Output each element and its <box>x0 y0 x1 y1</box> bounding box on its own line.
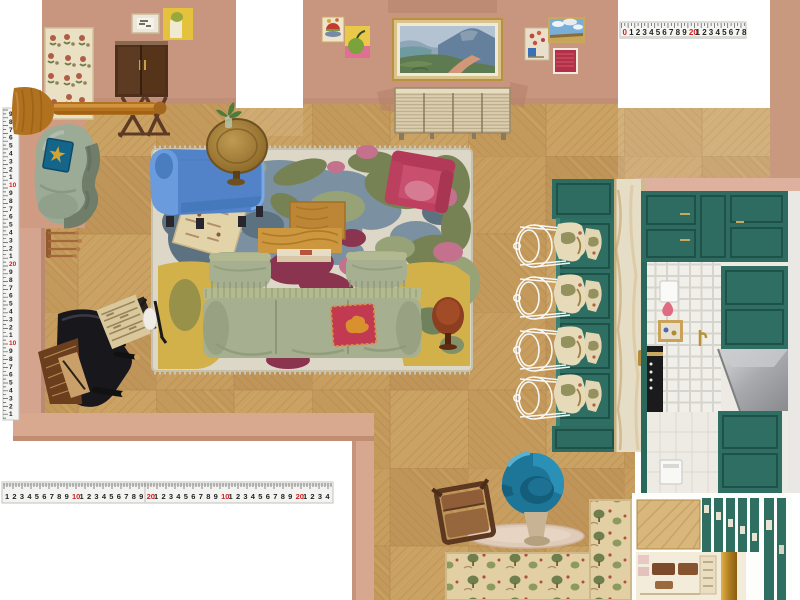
svg-text:6: 6 <box>9 135 13 142</box>
svg-text:3: 3 <box>709 28 714 37</box>
svg-text:3: 3 <box>318 492 322 501</box>
svg-text:1: 1 <box>154 492 158 501</box>
svg-text:7: 7 <box>669 28 674 37</box>
svg-text:3: 3 <box>94 492 98 501</box>
svg-text:10: 10 <box>9 182 17 189</box>
svg-text:1: 1 <box>9 332 13 339</box>
svg-text:3: 3 <box>9 158 13 165</box>
svg-text:2: 2 <box>9 403 13 410</box>
svg-text:3: 3 <box>20 492 24 501</box>
svg-text:5: 5 <box>184 492 188 501</box>
svg-text:1: 1 <box>9 253 13 260</box>
svg-text:6: 6 <box>266 492 270 501</box>
svg-text:5: 5 <box>258 492 262 501</box>
svg-text:2: 2 <box>236 492 240 501</box>
svg-text:9: 9 <box>9 348 13 355</box>
svg-text:1: 1 <box>9 411 13 418</box>
svg-text:5: 5 <box>109 492 113 501</box>
svg-text:6: 6 <box>117 492 121 501</box>
svg-text:4: 4 <box>9 151 13 158</box>
svg-text:7: 7 <box>124 492 128 501</box>
svg-text:9: 9 <box>288 492 292 501</box>
svg-text:2: 2 <box>87 492 91 501</box>
svg-text:1: 1 <box>5 492 9 501</box>
svg-text:2: 2 <box>702 28 707 37</box>
svg-text:4: 4 <box>9 230 13 237</box>
svg-text:3: 3 <box>642 28 647 37</box>
svg-text:7: 7 <box>199 492 203 501</box>
svg-text:20: 20 <box>9 261 17 268</box>
svg-text:4: 4 <box>649 28 654 37</box>
svg-text:3: 3 <box>9 316 13 323</box>
svg-text:5: 5 <box>722 28 727 37</box>
svg-text:3: 3 <box>169 492 173 501</box>
svg-text:7: 7 <box>9 206 13 213</box>
svg-text:7: 7 <box>273 492 277 501</box>
svg-text:2: 2 <box>9 166 13 173</box>
svg-text:3: 3 <box>243 492 247 501</box>
svg-text:9: 9 <box>682 28 687 37</box>
svg-text:5: 5 <box>9 301 13 308</box>
svg-text:9: 9 <box>9 269 13 276</box>
svg-text:3: 3 <box>9 395 13 402</box>
svg-text:9: 9 <box>214 492 218 501</box>
svg-text:1: 1 <box>696 28 701 37</box>
svg-text:2: 2 <box>9 245 13 252</box>
svg-text:10: 10 <box>9 340 17 347</box>
svg-text:6: 6 <box>662 28 667 37</box>
svg-text:2: 2 <box>310 492 314 501</box>
svg-text:8: 8 <box>206 492 210 501</box>
svg-text:7: 7 <box>50 492 54 501</box>
svg-text:8: 8 <box>9 356 13 363</box>
svg-text:6: 6 <box>191 492 195 501</box>
svg-text:7: 7 <box>9 127 13 134</box>
svg-text:6: 6 <box>9 214 13 221</box>
svg-text:9: 9 <box>65 492 69 501</box>
svg-text:9: 9 <box>139 492 143 501</box>
svg-text:2: 2 <box>9 324 13 331</box>
svg-text:8: 8 <box>281 492 285 501</box>
svg-text:0: 0 <box>623 28 628 37</box>
svg-text:6: 6 <box>729 28 734 37</box>
svg-text:8: 8 <box>742 28 747 37</box>
svg-text:6: 6 <box>42 492 46 501</box>
svg-text:1: 1 <box>303 492 307 501</box>
svg-text:3: 3 <box>9 237 13 244</box>
svg-text:5: 5 <box>9 222 13 229</box>
svg-text:1: 1 <box>629 28 634 37</box>
svg-text:7: 7 <box>9 285 13 292</box>
svg-text:7: 7 <box>9 364 13 371</box>
svg-text:6: 6 <box>9 293 13 300</box>
svg-text:1: 1 <box>9 174 13 181</box>
svg-text:8: 8 <box>132 492 136 501</box>
svg-text:5: 5 <box>35 492 39 501</box>
svg-text:8: 8 <box>9 277 13 284</box>
svg-text:2: 2 <box>636 28 641 37</box>
svg-text:4: 4 <box>716 28 721 37</box>
svg-text:2: 2 <box>12 492 16 501</box>
svg-text:4: 4 <box>9 309 13 316</box>
svg-text:8: 8 <box>9 198 13 205</box>
svg-text:8: 8 <box>57 492 61 501</box>
svg-text:5: 5 <box>9 380 13 387</box>
svg-text:4: 4 <box>9 388 13 395</box>
svg-text:8: 8 <box>676 28 681 37</box>
svg-text:5: 5 <box>9 143 13 150</box>
svg-text:1: 1 <box>80 492 84 501</box>
svg-text:1: 1 <box>229 492 233 501</box>
svg-text:5: 5 <box>656 28 661 37</box>
svg-text:2: 2 <box>162 492 166 501</box>
svg-text:7: 7 <box>735 28 740 37</box>
svg-text:6: 6 <box>9 372 13 379</box>
svg-text:9: 9 <box>9 190 13 197</box>
